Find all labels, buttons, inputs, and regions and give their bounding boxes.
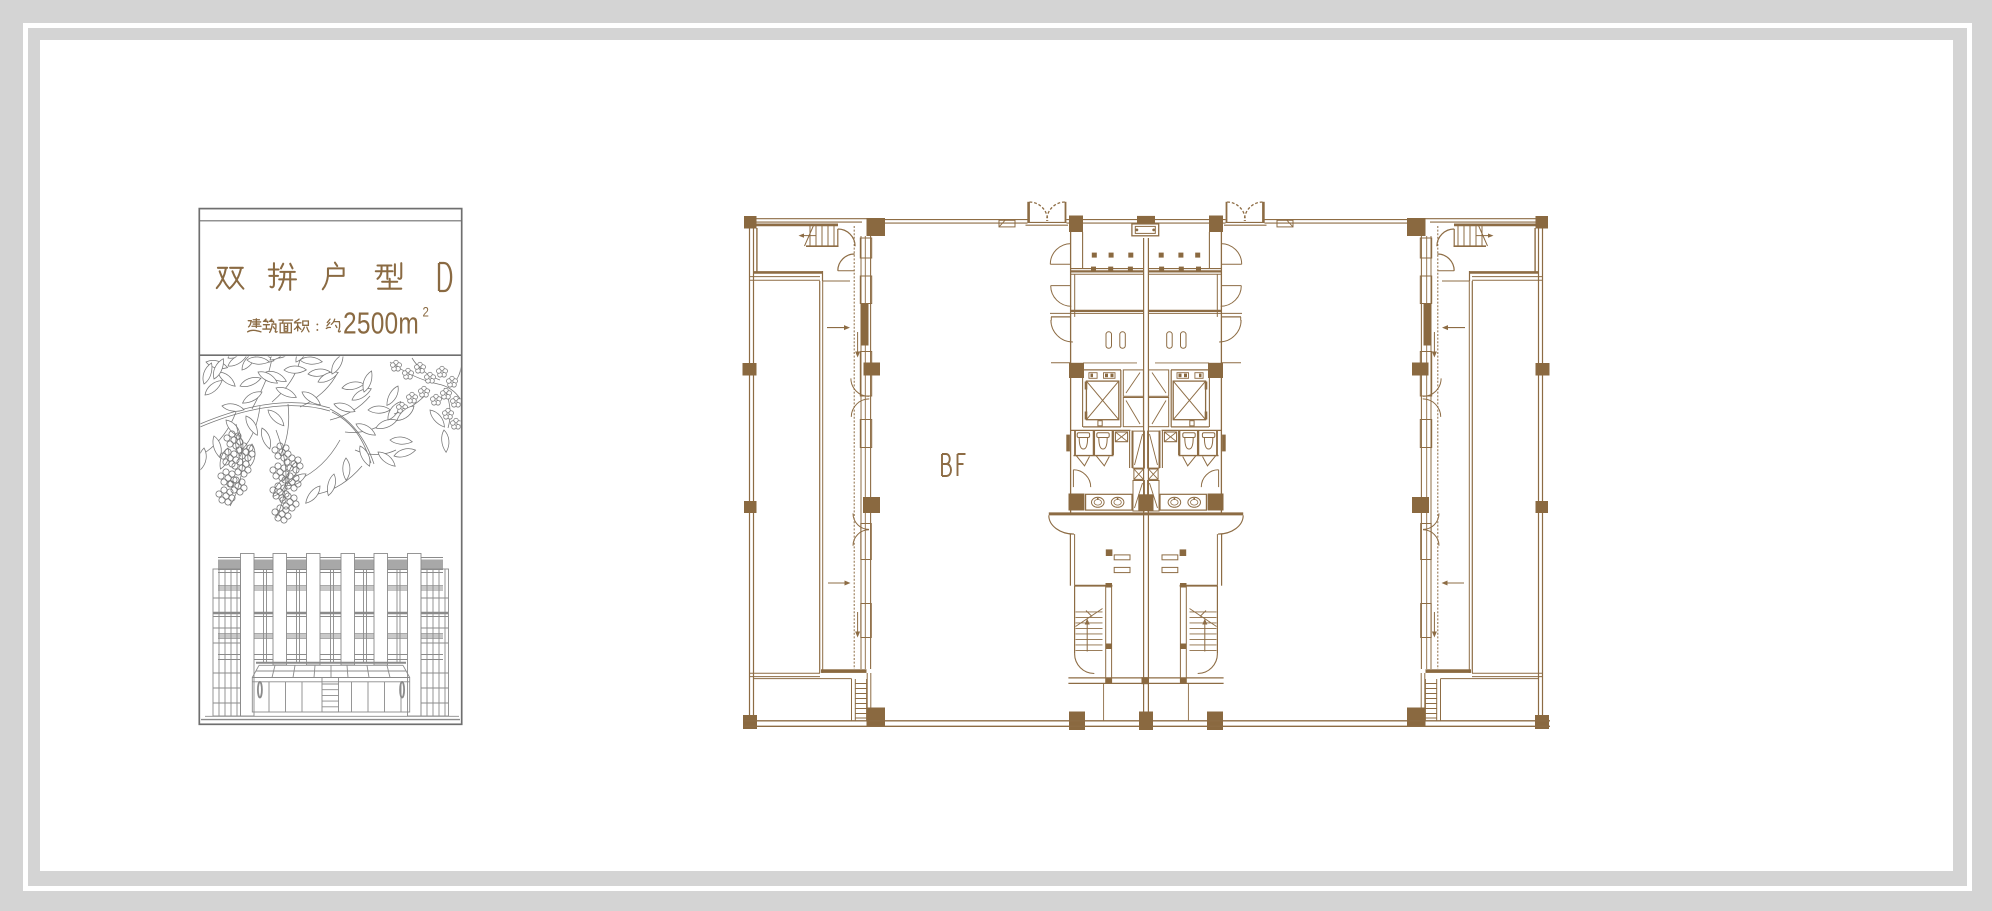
svg-text:2: 2 [423, 305, 429, 320]
svg-text:2500m: 2500m [343, 306, 419, 340]
